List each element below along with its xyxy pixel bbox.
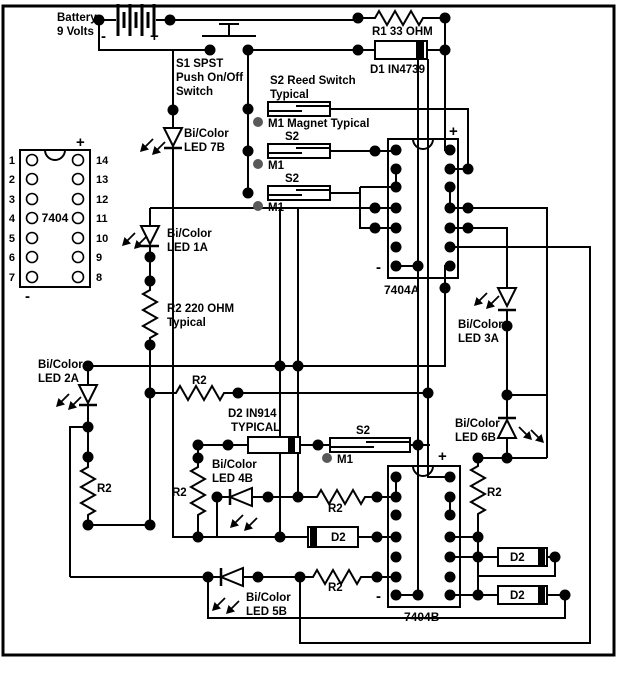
pin-number: 8 <box>96 272 102 284</box>
s1-label-line1: S1 SPST <box>176 58 223 70</box>
s2-label: S2 <box>356 425 370 437</box>
battery-plus-sign: + <box>150 28 159 45</box>
d2-label: D2 <box>510 590 525 602</box>
pin-number: 5 <box>9 233 15 245</box>
pin-number: 12 <box>96 194 108 206</box>
ic-7404a-minus: - <box>376 259 381 276</box>
magnet-m1-icon <box>253 159 263 169</box>
led5b-label-line1: Bi/Color <box>246 592 291 604</box>
r2-label: R2 <box>192 375 207 387</box>
d2-typical-label-line1: D2 IN914 <box>228 408 277 420</box>
battery-label-line1: Battery <box>57 12 97 24</box>
s1-label-line3: Switch <box>176 86 213 98</box>
d2-typical-label-line2: TYPICAL <box>231 422 280 434</box>
s1-label-line2: Push On/Off <box>176 72 243 84</box>
reed-switch-s2-4 <box>330 438 410 452</box>
r2-label: R2 <box>172 487 187 499</box>
pin-number: 6 <box>9 252 15 264</box>
pin-number: 4 <box>9 213 16 225</box>
reed-switch-s2-1 <box>268 102 330 116</box>
pin-number: 14 <box>96 155 109 167</box>
pin-number: 2 <box>9 174 15 186</box>
led1a-label-line1: Bi/Color <box>167 228 212 240</box>
pin-number: 10 <box>96 233 108 245</box>
r2-typical-label-line2: Typical <box>167 317 206 329</box>
led1a-label-line2: LED 1A <box>167 242 208 254</box>
led6b-label-line1: Bi/Color <box>455 418 500 430</box>
r2-label: R2 <box>97 483 112 495</box>
r1-label: R1 33 OHM <box>372 26 433 38</box>
battery-label-line2: 9 Volts <box>57 26 94 38</box>
d2-label: D2 <box>510 552 525 564</box>
s2-label: S2 <box>285 173 299 185</box>
schematic-page: Battery 9 Volts - + S1 SPST Push On/Off … <box>0 0 617 698</box>
magnet-m1-icon <box>253 201 263 211</box>
m1-label: M1 <box>268 160 285 172</box>
pin-number: 1 <box>9 155 15 167</box>
diode-d2-in914 <box>248 437 300 453</box>
m1-label: M1 <box>337 454 354 466</box>
pin-number: 13 <box>96 174 108 186</box>
led4b-label-line2: LED 4B <box>212 473 253 485</box>
pin-number: 7 <box>9 272 15 284</box>
reed-switch-s2-2 <box>268 144 330 158</box>
led3a-label-line1: Bi/Color <box>458 319 503 331</box>
reed-switch-s2-3 <box>268 186 330 200</box>
led2a-label-line2: LED 2A <box>38 373 79 385</box>
led7b-label-line1: Bi/Color <box>184 128 229 140</box>
r2-typical-label-line1: R2 220 OHM <box>167 303 234 315</box>
d1-label: D1 IN4739 <box>370 64 425 76</box>
magnet-m1-icon <box>322 453 332 463</box>
pin-number: 11 <box>96 213 108 225</box>
led7b-label-line2: LED 7B <box>184 142 225 154</box>
led4b-label-line1: Bi/Color <box>212 459 257 471</box>
ic-7404b-name: 7404B <box>404 610 440 624</box>
ic-7404-name: 7404 <box>42 211 69 225</box>
reed-label-line2: Typical <box>270 89 309 101</box>
pin-number: 3 <box>9 194 15 206</box>
led3a-label-line2: LED 3A <box>458 333 499 345</box>
ic-7404b-plus: + <box>438 448 447 465</box>
led5b-label-line2: LED 5B <box>246 606 287 618</box>
pin-number: 9 <box>96 252 102 264</box>
ic-7404a-plus: + <box>449 123 458 140</box>
m1-label: M1 <box>268 202 285 214</box>
ic-7404-plus: + <box>76 134 85 151</box>
magnet-m1-icon <box>253 117 263 127</box>
diode-d1 <box>375 41 427 59</box>
led2a-label-line1: Bi/Color <box>38 359 83 371</box>
ic-7404a-name: 7404A <box>384 283 420 297</box>
battery-minus-sign: - <box>101 28 106 45</box>
m1-typical-label: M1 Magnet Typical <box>268 118 369 130</box>
r2-label: R2 <box>328 503 343 515</box>
reed-label-line1: S2 Reed Switch <box>270 75 356 87</box>
ic-7404-minus: - <box>25 288 30 305</box>
circuit-schematic: Battery 9 Volts - + S1 SPST Push On/Off … <box>0 0 617 698</box>
ic-7404b-minus: - <box>376 588 381 605</box>
d2-label: D2 <box>331 532 346 544</box>
r2-label: R2 <box>328 582 343 594</box>
s2-label: S2 <box>285 131 299 143</box>
led6b-label-line2: LED 6B <box>455 432 496 444</box>
r2-label: R2 <box>487 487 502 499</box>
